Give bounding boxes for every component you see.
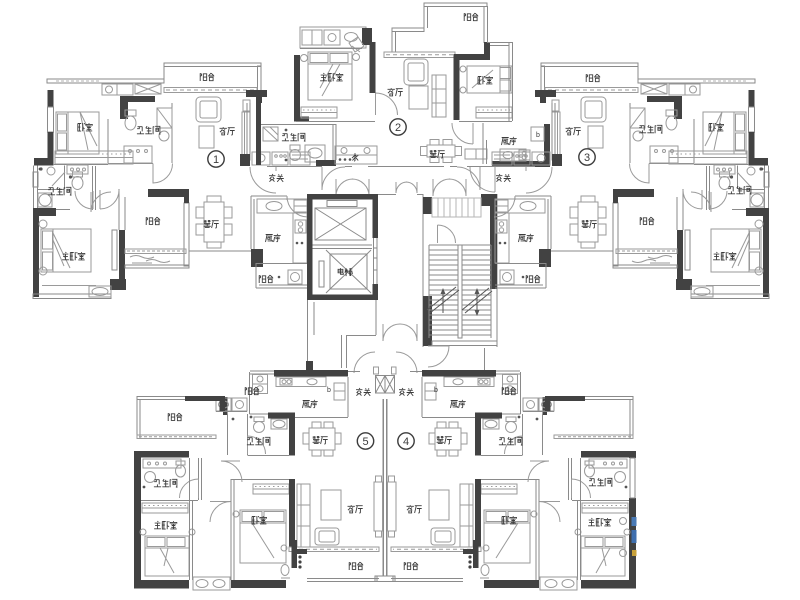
svg-text:2: 2 [395,122,401,134]
svg-text:5: 5 [362,436,368,448]
svg-text:b: b [434,387,438,394]
svg-text:4: 4 [403,436,409,448]
svg-text:b: b [327,387,331,394]
svg-text:b: b [536,132,540,139]
svg-text:1: 1 [213,154,219,166]
svg-text:3: 3 [584,152,590,164]
